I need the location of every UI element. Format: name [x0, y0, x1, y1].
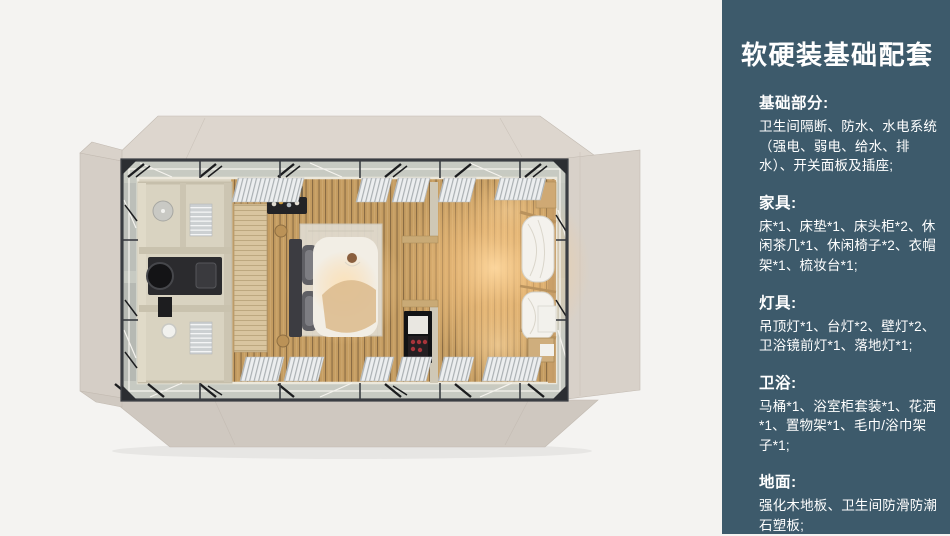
- section-heading: 地面:: [759, 470, 938, 492]
- spec-section-furniture: 家具: 床*1、床垫*1、床头柜*2、休闲茶几*1、休闲椅子*2、衣帽架*1、梳…: [759, 191, 938, 276]
- section-body: 卫生间隔断、防水、水电系统（强电、弱电、给水、排水）、开关面板及插座;: [759, 117, 938, 176]
- bathroom-partition: [139, 247, 231, 254]
- spec-panel: 软硬装基础配套 基础部分: 卫生间隔断、防水、水电系统（强电、弱电、给水、排水）…: [722, 0, 950, 534]
- spec-section-bathroom: 卫浴: 马桶*1、浴室柜套装*1、花洒*1、置物架*1、毛巾/浴巾架子*1;: [759, 371, 938, 456]
- seated-figure: [347, 253, 357, 263]
- spec-section-lighting: 灯具: 吊顶灯*1、台灯*2、壁灯*2、卫浴镜前灯*1、落地灯*1;: [759, 291, 938, 356]
- bunk-mattress: [538, 306, 556, 332]
- towel-rack: [190, 204, 212, 236]
- side-stool: [277, 335, 289, 347]
- shelf: [402, 236, 438, 243]
- spec-section-basics: 基础部分: 卫生间隔断、防水、水电系统（强电、弱电、给水、排水）、开关面板及插座…: [759, 91, 938, 176]
- section-body: 强化木地板、卫生间防滑防潮石塑板;: [759, 496, 938, 535]
- section-body: 马桶*1、浴室柜套装*1、花洒*1、置物架*1、毛巾/浴巾架子*1;: [759, 397, 938, 456]
- vanity-round-mirror: [147, 263, 173, 289]
- shelf: [402, 300, 438, 307]
- folded-blanket: [322, 280, 376, 333]
- toilet-paper-holder: [162, 324, 176, 338]
- section-heading: 卫浴:: [759, 371, 938, 393]
- floorplan-render: [0, 0, 722, 534]
- vanity-sink: [196, 263, 216, 288]
- top-wall-panel: [112, 116, 598, 160]
- double-bed: [275, 224, 382, 347]
- side-stool: [275, 225, 287, 237]
- deck-panel: [124, 183, 136, 271]
- wardrobe: [234, 204, 267, 352]
- headboard: [289, 239, 302, 337]
- floorplan-area: [0, 0, 722, 534]
- section-heading: 基础部分:: [759, 91, 938, 113]
- vanity-stool: [158, 297, 172, 317]
- panel-title: 软硬装基础配套: [741, 40, 938, 71]
- bathroom-right-wall: [224, 183, 231, 382]
- section-body: 吊顶灯*1、台灯*2、壁灯*2、卫浴镜前灯*1、落地灯*1;: [759, 317, 938, 356]
- left-wall-panel: [80, 153, 122, 398]
- towel-rack: [190, 322, 212, 354]
- curtain: [522, 216, 554, 282]
- section-heading: 灯具:: [759, 291, 938, 313]
- deck-panel: [124, 283, 136, 381]
- slide: 软硬装基础配套 基础部分: 卫生间隔断、防水、水电系统（强电、弱电、给水、排水）…: [0, 0, 950, 534]
- section-body: 床*1、床垫*1、床头柜*2、休闲茶几*1、休闲椅子*2、衣帽架*1、梳妆台*1…: [759, 217, 938, 276]
- spec-section-flooring: 地面: 强化木地板、卫生间防滑防潮石塑板;: [759, 470, 938, 535]
- section-heading: 家具:: [759, 191, 938, 213]
- bathroom-partition: [139, 305, 231, 312]
